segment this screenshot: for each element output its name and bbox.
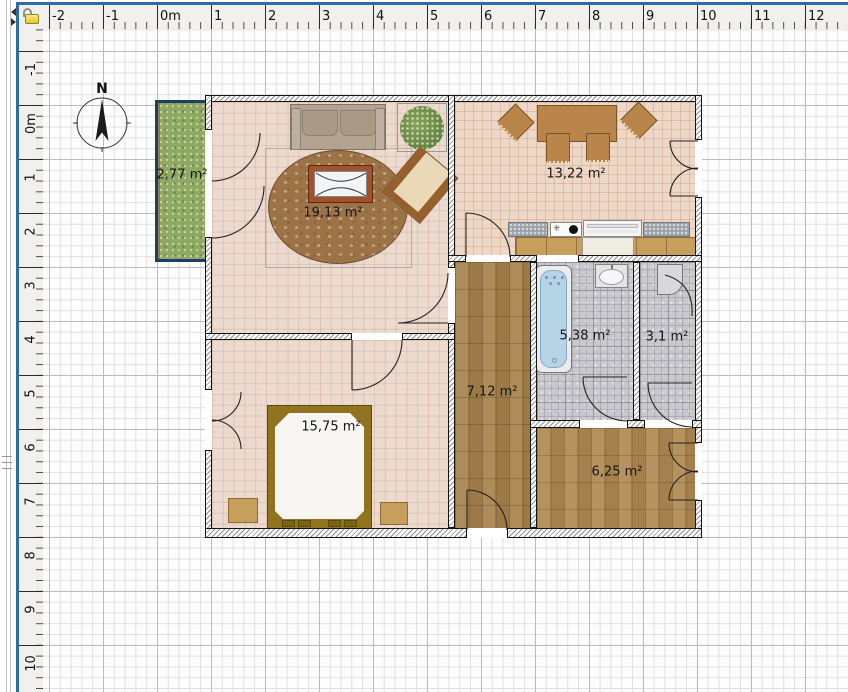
- room-label-living: 19,13 m²: [303, 206, 362, 221]
- wall[interactable]: [692, 420, 702, 428]
- plan-panel: -2 -1 0m 1 2 3 4 5 6 7 8 9 10 11 12 -1 0…: [16, 2, 848, 692]
- wall[interactable]: [205, 333, 352, 340]
- horizontal-ruler: -2 -1 0m 1 2 3 4 5 6 7 8 9 10 11 12: [43, 5, 848, 29]
- dining-chair[interactable]: [586, 133, 610, 162]
- kitchen-counter[interactable]: [643, 222, 690, 237]
- ruler-label: 3: [19, 268, 43, 302]
- splitter-grip[interactable]: [2, 462, 12, 463]
- dining-chair[interactable]: [546, 133, 570, 163]
- ruler-label: 11: [754, 9, 771, 24]
- shower-base[interactable]: [657, 264, 683, 295]
- door-opening[interactable]: [580, 420, 627, 428]
- wall[interactable]: [448, 255, 466, 262]
- sofa[interactable]: [290, 104, 386, 150]
- plan-canvas[interactable]: N: [43, 29, 848, 692]
- ruler-label: 1: [214, 9, 222, 24]
- wall[interactable]: [633, 262, 640, 420]
- ruler-label: 1: [19, 160, 43, 194]
- nightstand[interactable]: [228, 498, 258, 523]
- window-opening[interactable]: [537, 255, 578, 262]
- door-opening[interactable]: [352, 333, 402, 340]
- bathtub[interactable]: [535, 265, 572, 373]
- wall[interactable]: [578, 255, 702, 262]
- window-opening[interactable]: [205, 390, 212, 450]
- ruler-label: 8: [592, 9, 600, 24]
- splitter-bar[interactable]: [10, 0, 11, 692]
- ruler-label: 10: [700, 9, 717, 24]
- ruler-label: 6: [484, 9, 492, 24]
- door-opening[interactable]: [645, 420, 692, 428]
- ruler-label: 2: [19, 214, 43, 248]
- floor-plan-app: -2 -1 0m 1 2 3 4 5 6 7 8 9 10 11 12 -1 0…: [0, 0, 848, 692]
- room-label-shower: 3,1 m²: [646, 330, 689, 345]
- room-label-bedroom: 15,75 m²: [301, 420, 360, 435]
- ruler-label: 0m: [160, 9, 181, 24]
- nightstand[interactable]: [380, 502, 408, 525]
- cooktop[interactable]: ✳: [550, 222, 582, 237]
- wall[interactable]: [205, 450, 212, 538]
- room-label-storage: 6,25 m²: [592, 465, 643, 480]
- compass[interactable]: N: [72, 79, 132, 153]
- wall[interactable]: [448, 95, 455, 268]
- ruler-label: 7: [19, 484, 43, 518]
- ruler-label: 10: [19, 646, 43, 680]
- ruler-corner: [19, 5, 43, 29]
- kitchen-counter[interactable]: [508, 222, 548, 237]
- washbasin[interactable]: [595, 264, 628, 288]
- pot-icon: [569, 225, 578, 234]
- ruler-label: 2: [268, 9, 276, 24]
- ruler-label: 12: [808, 9, 825, 24]
- vertical-ruler: -1 0m 1 2 3 4 5 6 7 8 9 10: [19, 29, 43, 692]
- ruler-label: 9: [646, 9, 654, 24]
- door-opening[interactable]: [466, 255, 510, 262]
- ruler-label: 5: [430, 9, 438, 24]
- compass-north-label: N: [96, 81, 108, 97]
- room-label-hallway: 7,12 m²: [467, 385, 518, 400]
- ruler-label: 0m: [19, 106, 43, 140]
- ruler-label: 8: [19, 538, 43, 572]
- wall[interactable]: [530, 262, 537, 528]
- coffee-table[interactable]: [308, 165, 373, 203]
- door-opening[interactable]: [695, 140, 702, 197]
- wall[interactable]: [695, 197, 702, 443]
- room-label-kitchen: 13,22 m²: [546, 167, 605, 182]
- potted-plant[interactable]: [397, 103, 447, 152]
- ruler-label: 4: [19, 322, 43, 356]
- room-label-bathroom: 5,38 m²: [560, 329, 611, 344]
- ruler-label: -2: [52, 9, 65, 24]
- burner-icon: ✳: [553, 224, 561, 234]
- ruler-label: -1: [19, 52, 43, 86]
- panel-edge-line: [6, 0, 7, 692]
- ruler-label: -1: [106, 9, 119, 24]
- wall[interactable]: [205, 528, 467, 538]
- wall[interactable]: [507, 528, 702, 538]
- ruler-label: 3: [322, 9, 330, 24]
- wall[interactable]: [448, 323, 455, 528]
- door-opening[interactable]: [448, 268, 455, 323]
- door-opening[interactable]: [467, 528, 507, 538]
- ruler-label: 6: [19, 430, 43, 464]
- splitter-grip[interactable]: [2, 468, 12, 469]
- compass-needle: [96, 99, 109, 141]
- wall[interactable]: [205, 95, 212, 130]
- ruler-label: 4: [376, 9, 384, 24]
- wall[interactable]: [205, 237, 212, 390]
- wall[interactable]: [627, 420, 645, 428]
- unlocked-padlock-icon: [25, 14, 39, 24]
- door-opening[interactable]: [205, 130, 212, 237]
- wall[interactable]: [530, 420, 580, 428]
- kitchen-sink[interactable]: [583, 220, 642, 237]
- wall[interactable]: [510, 255, 537, 262]
- ruler-label: 5: [19, 376, 43, 410]
- ruler-label: 9: [19, 592, 43, 626]
- room-label-balcony: 2,77 m²: [157, 168, 208, 183]
- door-opening[interactable]: [695, 443, 702, 500]
- splitter-grip[interactable]: [2, 456, 12, 457]
- wall[interactable]: [695, 95, 702, 140]
- wall[interactable]: [402, 333, 455, 340]
- ruler-label: 7: [538, 9, 546, 24]
